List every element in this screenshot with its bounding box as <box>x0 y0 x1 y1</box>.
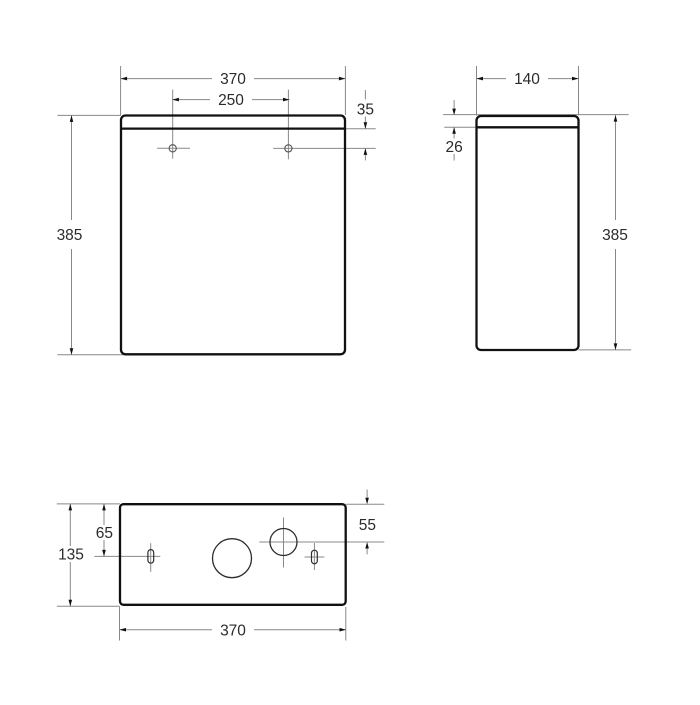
svg-text:370: 370 <box>220 71 246 88</box>
svg-text:385: 385 <box>602 227 628 244</box>
svg-text:135: 135 <box>58 546 84 563</box>
svg-text:385: 385 <box>57 227 83 244</box>
svg-text:55: 55 <box>359 517 376 534</box>
svg-text:35: 35 <box>357 102 374 119</box>
svg-text:26: 26 <box>445 139 462 156</box>
svg-text:140: 140 <box>514 71 540 88</box>
svg-text:370: 370 <box>220 622 246 639</box>
svg-text:65: 65 <box>96 525 113 542</box>
svg-text:250: 250 <box>218 92 244 109</box>
